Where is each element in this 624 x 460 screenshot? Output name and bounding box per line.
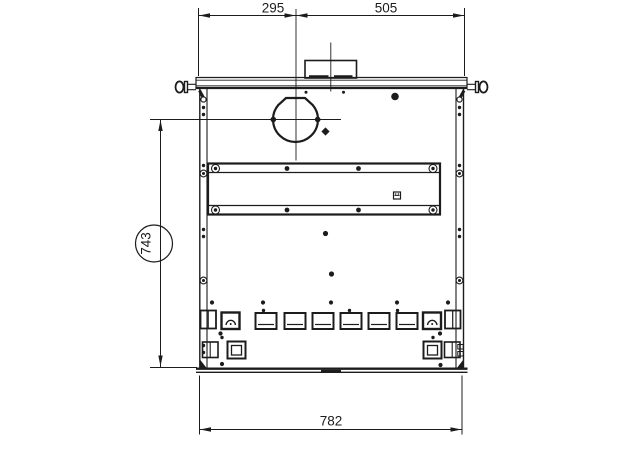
flue-opening (271, 98, 330, 142)
dimension-label-782: 782 (320, 414, 343, 429)
diamond-rivet (321, 127, 329, 135)
corner-opening-left (203, 336, 246, 366)
dimension-label-295: 295 (262, 1, 285, 16)
row-rivets (210, 300, 450, 335)
upper-rivets (305, 91, 399, 100)
dimension-label-743: 743 (139, 232, 154, 255)
rect-openings (256, 313, 418, 329)
arch-opening-right (423, 313, 441, 330)
right-bottom-weld (457, 360, 464, 369)
left-bottom-weld (200, 360, 207, 369)
base-plate (196, 369, 468, 373)
dimension-bottom-width: 782 (200, 376, 463, 435)
top-rail (196, 77, 467, 89)
dimension-top-widths: 295 505 (199, 1, 465, 77)
boiler-rear-view-drawing: 295 505 743 782 (0, 0, 624, 460)
arch-opening-left (222, 313, 240, 330)
technical-drawing-page: 295 505 743 782 (0, 0, 624, 460)
left-knob (176, 81, 197, 92)
large-plug (391, 93, 399, 101)
center-rivets (323, 231, 334, 277)
burner-opening-row (201, 300, 461, 335)
dimension-left-height: 743 (136, 120, 198, 368)
right-knob (467, 81, 488, 92)
corner-openings (203, 336, 461, 367)
dimension-label-505: 505 (375, 1, 398, 16)
access-panel (208, 164, 440, 215)
base-center-tab (321, 370, 341, 373)
corner-opening-right (424, 336, 461, 367)
panel-marker-square (394, 192, 401, 199)
